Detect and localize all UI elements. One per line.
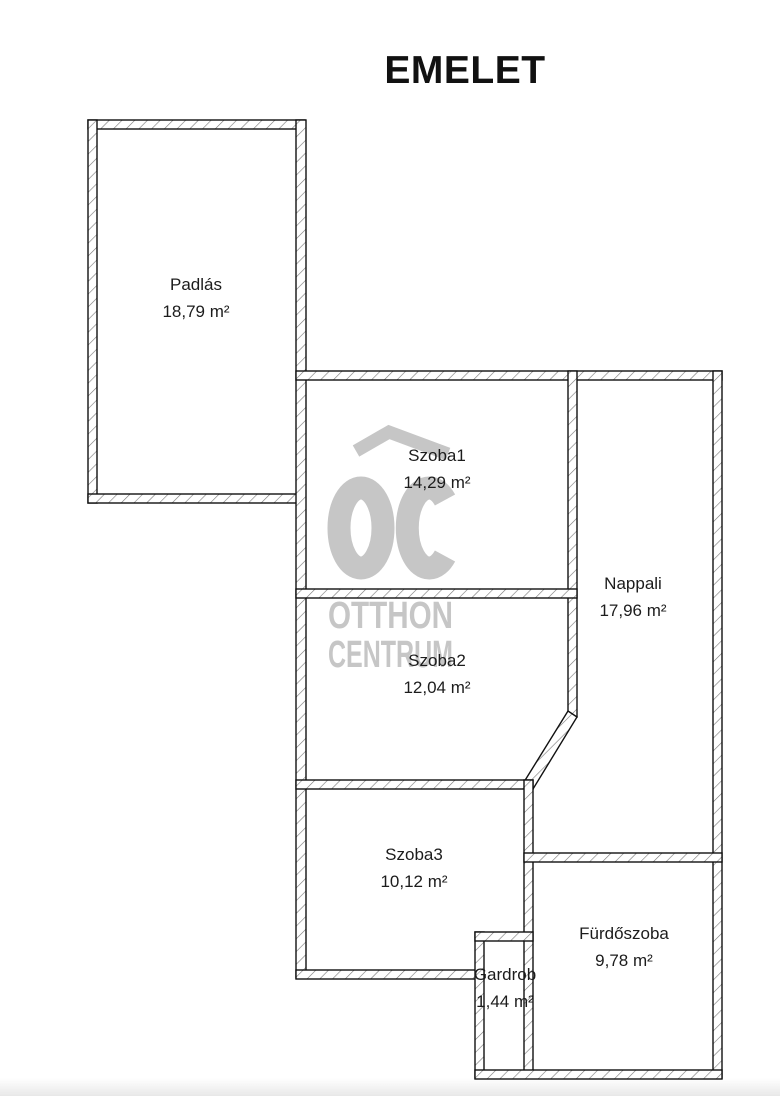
room-label-gardrob: Gardrob 1,44 m² [474, 961, 536, 1015]
room-area: 1,44 m² [474, 988, 536, 1015]
room-area: 14,29 m² [403, 469, 470, 496]
room-label-szoba3: Szoba3 10,12 m² [380, 841, 447, 895]
wall-szoba3-bottom [296, 970, 484, 979]
room-name: Gardrob [474, 961, 536, 988]
wall-mid-vertical [524, 780, 533, 1078]
wall-padlas-bottom [88, 494, 305, 503]
wall-top [296, 371, 722, 380]
room-area: 18,79 m² [162, 298, 229, 325]
wall-szoba1-nappali [568, 371, 577, 717]
wall-szoba1-szoba2 [296, 589, 577, 598]
wall-left-column [296, 120, 306, 978]
room-area: 12,04 m² [403, 674, 470, 701]
wall-diagonal [524, 711, 577, 789]
room-label-nappali: Nappali 17,96 m² [599, 570, 666, 624]
room-label-furdoszoba: Fürdőszoba 9,78 m² [579, 920, 669, 974]
room-area: 10,12 m² [380, 868, 447, 895]
room-area: 17,96 m² [599, 597, 666, 624]
room-name: Fürdőszoba [579, 920, 669, 947]
room-name: Szoba3 [380, 841, 447, 868]
wall-furdoszoba-top [524, 853, 722, 862]
wall-padlas-top [88, 120, 305, 129]
room-area: 9,78 m² [579, 947, 669, 974]
room-label-szoba2: Szoba2 12,04 m² [403, 647, 470, 701]
bottom-shadow [0, 1078, 780, 1096]
watermark-line1: OTTHON [328, 595, 453, 637]
room-name: Szoba2 [403, 647, 470, 674]
room-name: Padlás [162, 271, 229, 298]
wall-gardrob-top [475, 932, 533, 941]
wall-right [713, 371, 722, 1078]
oc-logo-c [407, 488, 445, 568]
wall-szoba2-bottom [296, 780, 533, 789]
room-label-szoba1: Szoba1 14,29 m² [403, 442, 470, 496]
room-label-padlas: Padlás 18,79 m² [162, 271, 229, 325]
oc-logo-o [339, 488, 383, 568]
floor-plan-canvas: EMELET OTTHON CENTRUM [0, 0, 780, 1096]
room-name: Szoba1 [403, 442, 470, 469]
room-name: Nappali [599, 570, 666, 597]
wall-padlas-left [88, 120, 97, 503]
